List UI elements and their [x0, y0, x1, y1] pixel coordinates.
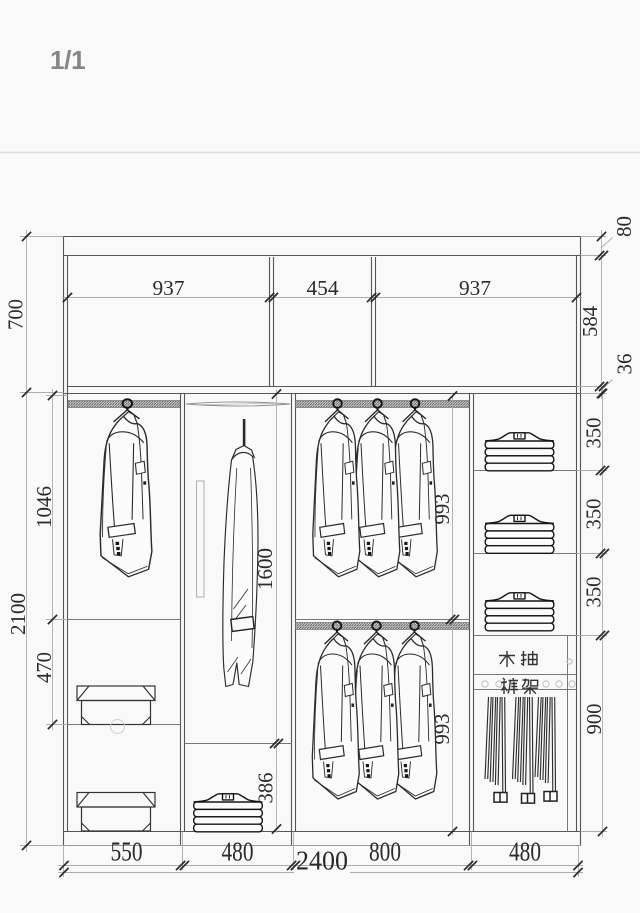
svg-text:700: 700	[3, 299, 27, 330]
svg-text:470: 470	[32, 652, 56, 683]
svg-text:584: 584	[578, 306, 602, 337]
svg-text:480: 480	[509, 837, 541, 867]
svg-text:350: 350	[582, 499, 606, 530]
svg-text:993: 993	[430, 494, 454, 525]
svg-text:937: 937	[459, 276, 491, 300]
svg-text:36: 36	[613, 353, 637, 374]
svg-text:454: 454	[307, 276, 339, 300]
svg-text:480: 480	[222, 837, 254, 867]
svg-text:800: 800	[369, 837, 401, 867]
svg-text:350: 350	[582, 577, 606, 608]
svg-text:386: 386	[254, 772, 278, 803]
svg-text:350: 350	[582, 418, 606, 449]
svg-text:1600: 1600	[253, 548, 277, 590]
svg-text:550: 550	[111, 837, 143, 867]
svg-text:1046: 1046	[32, 486, 56, 528]
svg-text:993: 993	[430, 714, 454, 745]
svg-text:80: 80	[612, 216, 636, 237]
svg-text:937: 937	[153, 276, 185, 300]
svg-text:2100: 2100	[6, 593, 30, 635]
svg-text:2400: 2400	[296, 846, 348, 876]
svg-text:900: 900	[582, 704, 606, 735]
